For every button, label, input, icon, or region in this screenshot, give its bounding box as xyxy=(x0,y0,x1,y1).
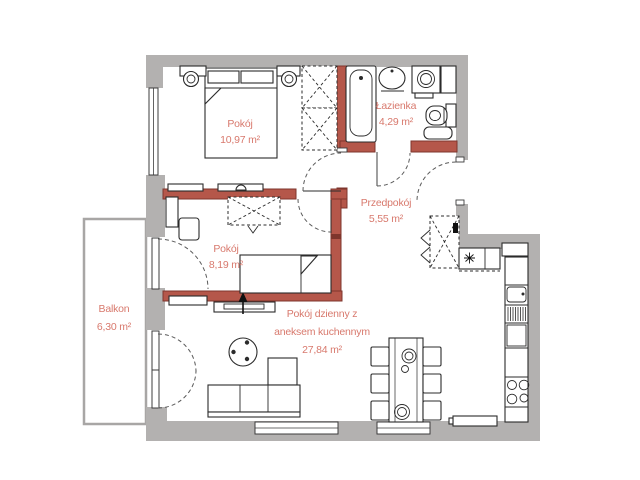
wall-left-mid1 xyxy=(146,175,165,237)
floor-plan-canvas: Pokój 10,97 m² Łazienka 4,29 m² Przedpok… xyxy=(0,0,640,480)
dining-set xyxy=(371,338,441,422)
desk-chair xyxy=(179,218,199,240)
lamp-right xyxy=(282,72,297,87)
radiator-living xyxy=(453,416,497,426)
washing-machine-drawer xyxy=(415,93,433,98)
sofa-seat xyxy=(208,385,300,412)
coffee-table-dot xyxy=(245,357,249,361)
balcony-area-label: 6,30 m² xyxy=(97,321,132,333)
sofa-base xyxy=(208,412,300,417)
floor-plan-page: Pokój 10,97 m² Łazienka 4,29 m² Przedpok… xyxy=(0,0,640,480)
wall-bedroom1-bedroom2-end xyxy=(331,189,347,199)
tv-on-wall xyxy=(169,296,207,305)
pillow-left xyxy=(208,71,239,83)
desk xyxy=(166,197,178,227)
living-area-label: 27,84 m² xyxy=(302,344,343,356)
hallway-name-label: Przedpokój xyxy=(361,197,412,209)
bedroom2-name-label: Pokój xyxy=(213,243,238,255)
door-bedroom1-jamb-top xyxy=(337,148,347,152)
entry-door-jamb-bottom xyxy=(456,200,464,205)
fridge xyxy=(459,248,500,269)
lamp-left xyxy=(184,72,199,87)
coffee-table-dot xyxy=(245,340,249,344)
living-name-label-line2: aneksem kuchennym xyxy=(274,326,370,338)
living-name-label-line1: Pokój dzienny z xyxy=(287,308,358,320)
tv-bench xyxy=(214,302,275,312)
bathtub-drain xyxy=(359,76,363,80)
wall-right-lower xyxy=(528,234,540,441)
washbasin-tap xyxy=(391,70,394,73)
wall-right-upper xyxy=(456,55,468,160)
bathroom-name-label: Łazienka xyxy=(376,100,417,112)
bathroom-area-label: 4,29 m² xyxy=(379,116,414,128)
wall-left-mid2 xyxy=(146,288,165,330)
wall-cap-dark xyxy=(331,234,341,239)
single-bed xyxy=(240,255,331,293)
kitchen-tap xyxy=(522,293,525,296)
bedroom1-name-label: Pokój xyxy=(227,118,252,130)
bedroom1-area-label: 10,97 m² xyxy=(220,134,261,146)
chair xyxy=(423,347,441,366)
bathroom-cabinet xyxy=(441,66,456,93)
sofa-chaise xyxy=(268,358,297,385)
chair xyxy=(423,401,441,420)
chair xyxy=(371,374,389,393)
towel-radiator xyxy=(424,127,452,139)
chair xyxy=(371,401,389,420)
wall-top xyxy=(148,55,468,67)
wall-sconce xyxy=(236,185,246,190)
wardrobe-handle xyxy=(453,223,458,233)
kitchen-wall-cabinet xyxy=(502,243,528,256)
coffee-table-dot xyxy=(231,350,235,354)
balcony-door-living-glazing-upper xyxy=(152,331,159,370)
wall-bedroom2-hallway xyxy=(331,199,341,300)
balcony-door-bedroom2-glazing xyxy=(152,238,159,289)
dresser-left xyxy=(168,184,203,191)
chair xyxy=(371,347,389,366)
hallway-area-label: 5,55 m² xyxy=(369,213,404,225)
balcony-name-label: Balkon xyxy=(99,303,130,315)
entry-door-jamb-top xyxy=(456,157,464,162)
wall-left-top xyxy=(146,55,163,88)
wall-bottom-left-corner xyxy=(146,407,167,441)
wall-bathroom-south-right xyxy=(411,141,457,152)
chair xyxy=(423,374,441,393)
radiator-valve xyxy=(449,418,453,424)
bedroom2-area-label: 8,19 m² xyxy=(209,259,244,271)
balcony-door-living-glazing-lower xyxy=(152,370,159,408)
pillow-right xyxy=(241,71,273,83)
